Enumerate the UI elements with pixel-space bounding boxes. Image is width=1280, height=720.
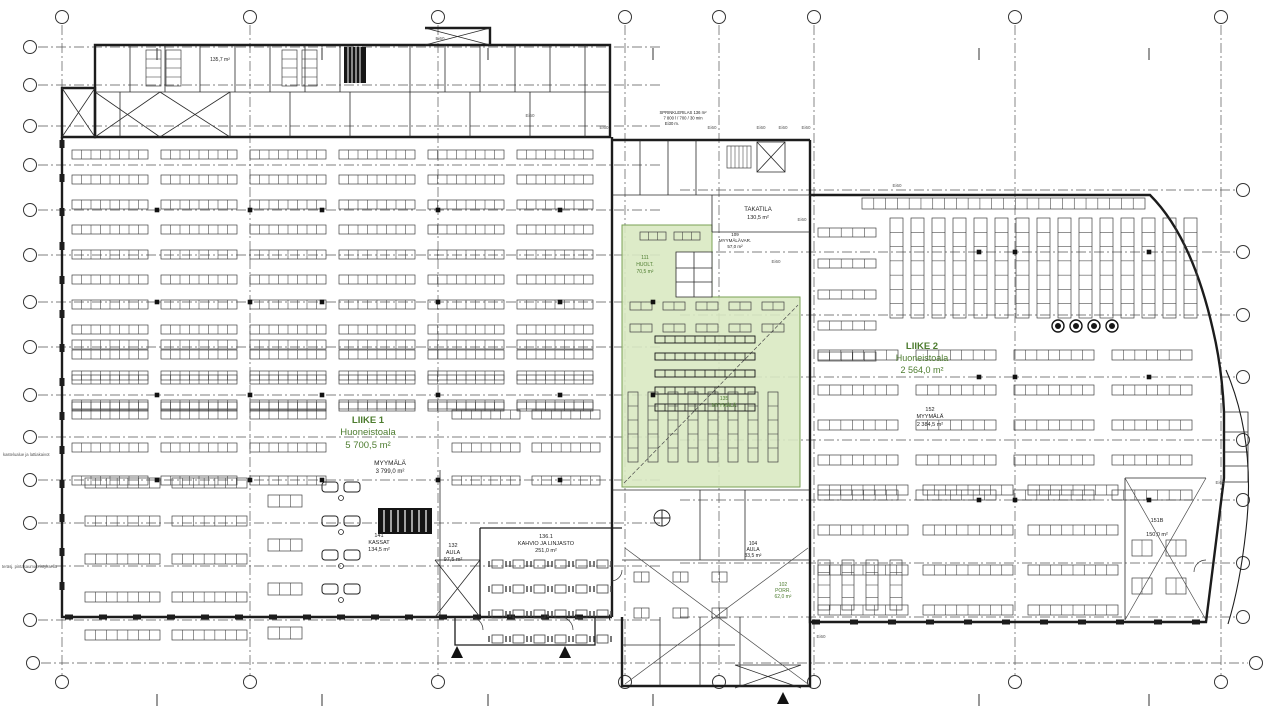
structural-column [1147,250,1152,255]
grid-bubble [24,120,37,133]
shelving-unit [1142,218,1155,318]
fire-rating-label: Ei60 [599,125,609,130]
shelving-unit [1112,385,1192,395]
checkout-counter [322,482,338,492]
shelving-unit [1100,218,1113,318]
grid-bubble [1237,309,1250,322]
floor-plan-drawing: LIIKE 1Huoneistoala5 700,5 m²MYYMÄLÄ3 79… [0,0,1280,720]
structural-column [436,393,441,398]
fire-rating-label: Ei60 [435,36,445,41]
room-label: MYYMÄLÄVAR. [719,237,751,243]
grid-bubble [24,249,37,262]
checkout-counter [344,584,360,594]
room-label: Ei30 m. [665,121,679,126]
grid-bubble [24,614,37,627]
shelving-unit [1037,218,1050,318]
shelving-unit [268,495,302,507]
shelving-unit [172,630,247,640]
room-label: 151B [1151,518,1164,524]
shelving-unit [953,218,966,318]
grid-bubble [24,341,37,354]
spiral-stair-glyph [654,510,670,526]
shelving-unit [85,478,160,488]
room-label: 130,5 m² [747,215,769,221]
cafe-table [513,560,524,568]
cafe-table [492,560,503,568]
entrance-arrow [559,646,571,658]
shelving-unit [818,350,898,360]
round-table-top [1055,323,1061,329]
room-label: 62,0 m² [775,594,792,600]
structural-column [155,478,160,483]
shelving-unit [818,352,876,361]
room-label: LIIKE 1 [352,415,385,426]
structural-column [1013,498,1018,503]
grid-bubble [1237,371,1250,384]
shelving-unit [1014,420,1094,430]
entrance-markers-layer [451,646,789,704]
checkout-counter [344,550,360,560]
shelving-unit [1079,218,1092,318]
fire-rating-label: Ei60 [771,259,781,264]
structural-column [1013,250,1018,255]
fire-rating-label: Ei60 [816,634,826,639]
grid-bubble [1237,557,1250,570]
shelving-unit [172,592,247,602]
fire-rating-label: Ei60 [797,217,807,222]
cafe-table [576,585,587,593]
shelving-unit [1058,218,1071,318]
structural-column [977,375,982,380]
room-label: MYYMÄLÄ [374,459,406,467]
entrance-arrow [451,646,463,658]
shelving-unit [172,554,247,564]
grid-bubble [244,11,257,24]
room-label: 251,0 m² [535,548,557,554]
shelving-unit [818,228,876,237]
fire-rating-label: Ei60 [707,125,717,130]
grid-bubble [1215,11,1228,24]
room-label: 150,0 m² [1146,532,1168,538]
structural-column [248,208,253,213]
shelving-unit [532,476,600,485]
cafe-table [597,635,608,643]
room-label: AULA [446,550,461,556]
shelving-unit [172,516,247,526]
structural-column [977,250,982,255]
room-label: 57,0 m² [727,244,743,249]
grid-bubble [432,676,445,689]
structural-column [155,208,160,213]
structural-column [558,300,563,305]
shelving-unit [1014,350,1094,360]
shelving-unit [85,554,160,564]
room-label: 111 [641,255,649,261]
shelving-unit [916,455,996,465]
room-label: 135,7 m² [210,57,230,63]
room-label: 109 [731,232,739,237]
grid-bubble [808,11,821,24]
structural-column [1147,498,1152,503]
room-label: KASSAT [368,540,390,546]
room-label: TAKATILA [744,207,771,213]
structural-column [436,300,441,305]
room-label: 132 [448,543,457,549]
shelving-unit [268,539,302,551]
structural-column [320,478,325,483]
grid-bubble [1215,676,1228,689]
shelving-unit [452,443,520,452]
grid-bubble [24,389,37,402]
structural-column [1147,375,1152,380]
cafe-table [513,585,524,593]
shelving-unit [818,321,876,330]
shelving-unit [532,443,600,452]
shelving-unit [818,420,898,430]
structural-column [248,393,253,398]
shelving-unit [85,516,160,526]
grid-bubble [713,11,726,24]
structural-column [558,393,563,398]
structural-column [977,498,982,503]
structural-column [248,478,253,483]
room-label: 2 384,5 m² [917,422,943,428]
fire-rating-label: Ei60 [801,125,811,130]
structural-column [558,478,563,483]
round-table-top [1091,323,1097,329]
cafe-table [534,560,545,568]
cafe-table [597,560,608,568]
grid-bubble [24,474,37,487]
shelving-unit [1112,350,1192,360]
shelving-unit [268,627,302,639]
grid-bubble [24,296,37,309]
shelving-unit [1014,455,1094,465]
shelving-unit [818,259,876,268]
structural-column [1013,375,1018,380]
structural-column [248,300,253,305]
shelving-unit [85,592,160,602]
grid-bubble [1237,184,1250,197]
fire-rating-label: Ei60 [778,125,788,130]
grid-bubble [432,11,445,24]
checkout-post [339,496,344,501]
checkout-counter [322,584,338,594]
checkout-counter [322,550,338,560]
cafe-table [555,635,566,643]
shelving-unit [1112,490,1192,500]
structural-column [436,208,441,213]
shelving-unit [452,410,520,419]
structural-column [320,300,325,305]
room-label: 152 [925,407,934,413]
checkout-counter [322,516,338,526]
structural-column [558,208,563,213]
room-label: 136.1 [539,534,553,540]
shelving-unit [818,385,898,395]
grid-bubble [27,657,40,670]
grid-bubble [1237,246,1250,259]
structural-column [320,208,325,213]
room-label: HUOLT. [636,262,653,268]
room-label: Huoneistoala [340,427,396,438]
shelving-unit [911,218,924,318]
grid-bubble [1250,657,1263,670]
room-label: 70,5 m² [637,269,654,275]
grid-bubble [244,676,257,689]
room-label: 5 700,5 m² [345,440,390,451]
grid-bubble [24,159,37,172]
structural-column [651,300,656,305]
checkout-post [339,598,344,603]
checkout-counter [344,482,360,492]
shelving-unit [452,476,520,485]
cafe-table [513,635,524,643]
checkout-post [339,530,344,535]
cafe-table [534,635,545,643]
shelving-unit [932,218,945,318]
grid-bubble [1009,676,1022,689]
grid-bubble [56,676,69,689]
grid-bubble [1009,11,1022,24]
grid-bubble [24,431,37,444]
cafe-table [555,560,566,568]
structural-column [155,300,160,305]
shelving-unit [818,290,876,299]
room-label: 3 799,0 m² [376,469,405,475]
structural-column [320,393,325,398]
room-label: SPRINKLERILAS 136 m² [659,110,707,115]
round-table-top [1109,323,1115,329]
structural-column [651,393,656,398]
shelving-unit [995,218,1008,318]
fire-rating-label: Ei60 [756,125,766,130]
fire-rating-label: Ei60 [1215,480,1225,485]
shelving-unit [1163,218,1176,318]
room-label: 135 [720,396,729,402]
shelving-unit [890,218,903,318]
shelving-unit [1016,218,1029,318]
grid-bubble [24,79,37,92]
round-table-top [1073,323,1079,329]
shelving-unit [974,218,987,318]
structural-column [155,393,160,398]
room-label: 7 800 l / 700 / 30 min [663,116,703,121]
grid-bubble [24,204,37,217]
grid-bubble [24,41,37,54]
shelving-unit [85,630,160,640]
room-label: LIIKE 2 [906,341,938,352]
shelving-unit [1014,385,1094,395]
room-label: KAHVIO JA LINJASTO [518,541,575,547]
room-label: 141 [374,533,383,539]
cafe-table [576,560,587,568]
room-label: 134,5 m² [368,547,390,553]
grid-bubble [1237,611,1250,624]
grid-bubble [56,11,69,24]
room-label: 33,5 m² [745,553,762,559]
floor-plan-canvas: LIIKE 1Huoneistoala5 700,5 m²MYYMÄLÄ3 79… [0,0,1280,720]
room-label: Huoneistoala [896,353,949,363]
shelving-unit [1121,218,1134,318]
room-label: teräsj. pintasaumaeristyksellä [2,564,58,569]
labels-layer: LIIKE 1Huoneistoala5 700,5 m²MYYMÄLÄ3 79… [2,36,1225,639]
fire-rating-label: Ei60 [892,183,902,188]
shelving-unit [532,410,600,419]
room-label: MYYMÄLÄ [712,402,737,409]
cafe-table [555,585,566,593]
grid-bubble [619,11,632,24]
structural-column [436,478,441,483]
cafe-table [534,585,545,593]
room-label: 97,5 m² [444,557,463,563]
shelving-unit [916,385,996,395]
entrance-arrow [777,692,789,704]
room-label: kastelualue ja lattiakaivot [3,452,50,457]
checkout-counter [344,516,360,526]
shelving-unit [172,478,247,488]
fire-rating-label: Ei60 [525,113,535,118]
grid-bubble [24,517,37,530]
shelving-unit [818,455,898,465]
cafe-table [597,585,608,593]
grid-bubble [1237,434,1250,447]
room-label: 2 564,0 m² [900,365,943,375]
shelving-unit [1112,455,1192,465]
cafe-table [576,635,587,643]
shelving-unit [1112,420,1192,430]
room-label: MYYMÄLÄ [917,413,944,420]
cafe-table [492,635,503,643]
cafe-table [492,585,503,593]
shelving-unit [268,583,302,595]
